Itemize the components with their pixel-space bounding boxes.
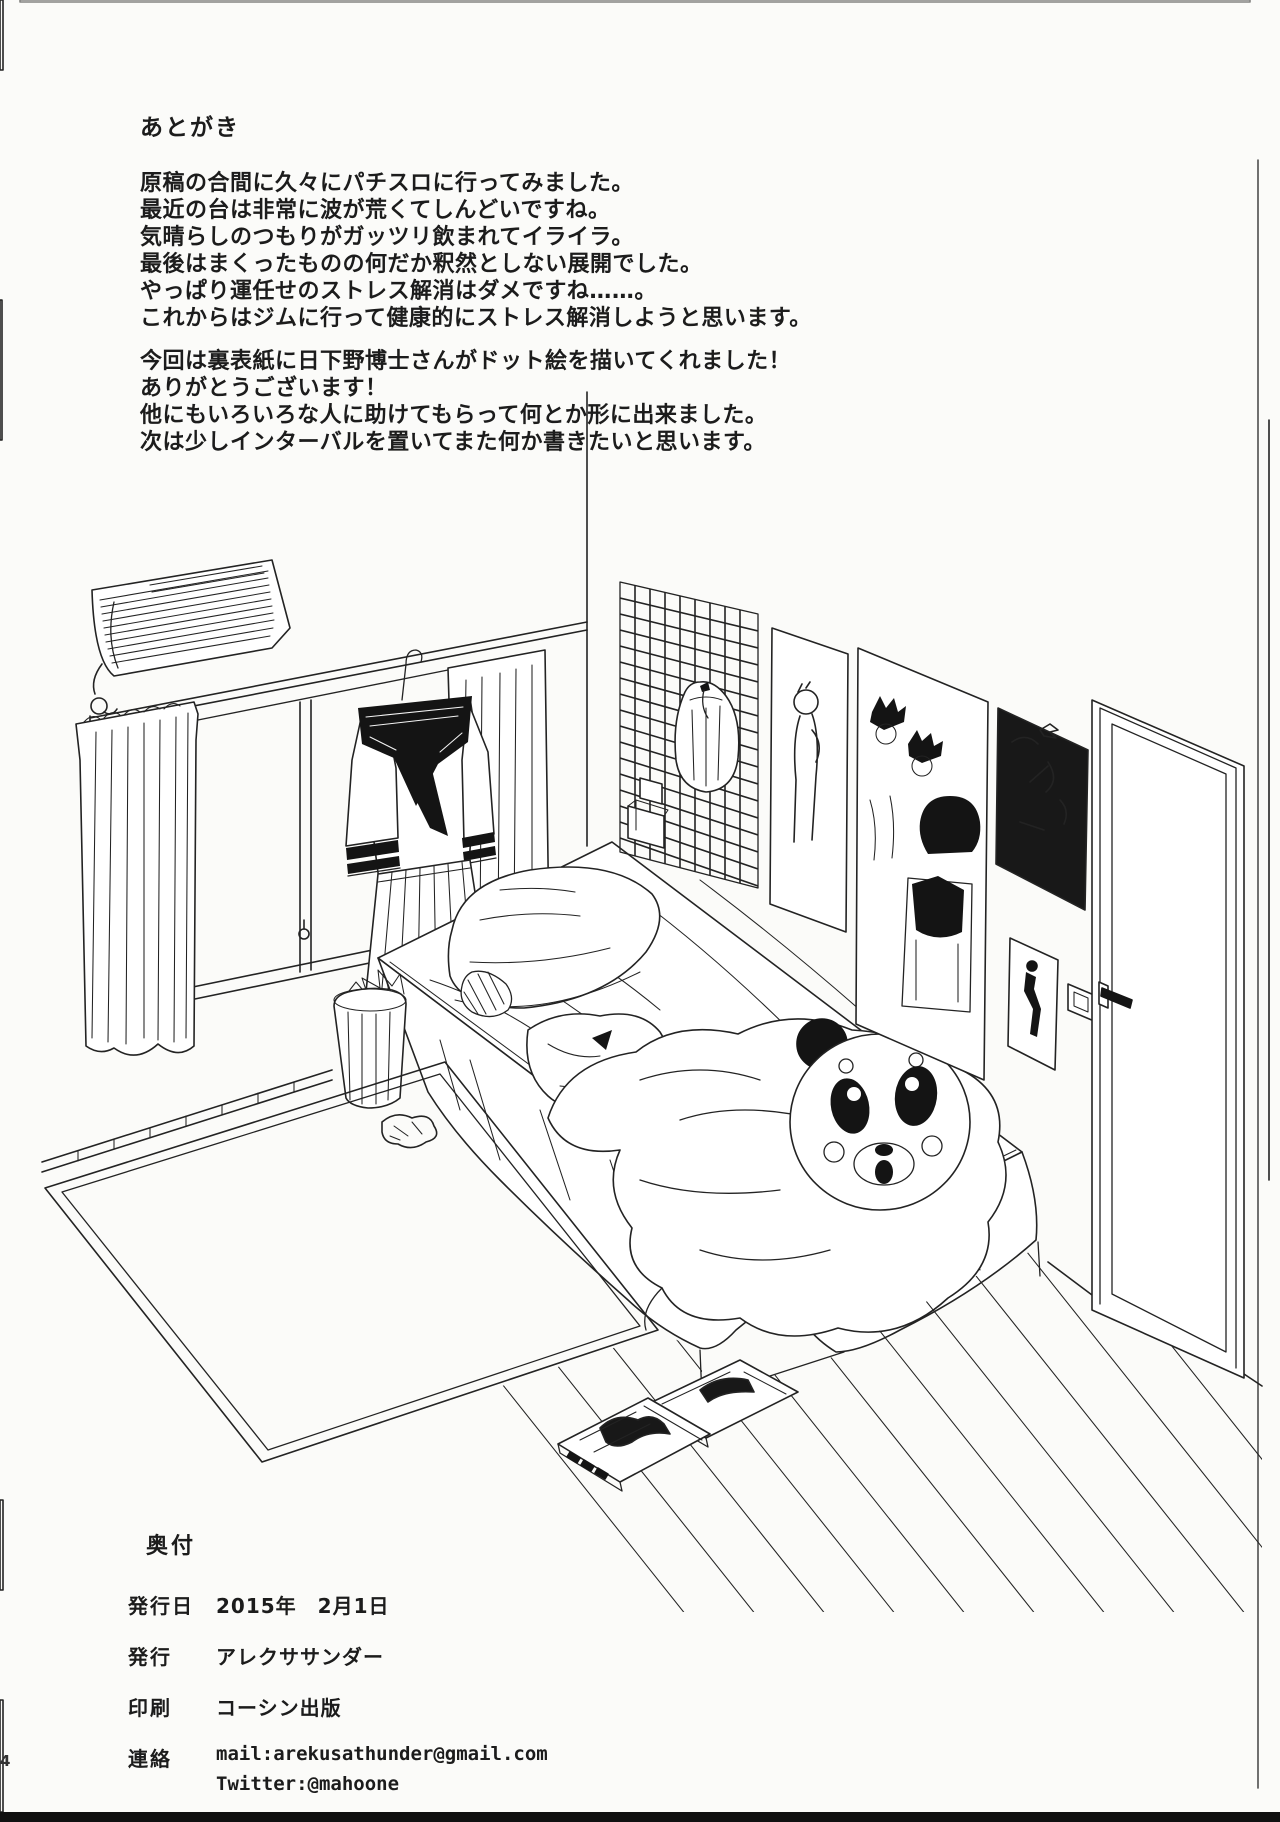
manga-volumes — [558, 1360, 798, 1491]
page-number: 4 — [0, 1752, 10, 1770]
poster-small — [1008, 938, 1058, 1070]
colophon-row: 連絡 mail:arekusathunder@gmail.com Twitter… — [128, 1743, 548, 1795]
drawstring-bag — [675, 682, 739, 792]
contact-email: mail:arekusathunder@gmail.com — [216, 1743, 548, 1765]
colophon-row: 印刷 コーシン出版 — [128, 1692, 548, 1721]
colophon-value: アレクササンダー — [216, 1641, 384, 1670]
bottom-scan-bar — [0, 1812, 1280, 1822]
colophon-label: 発行 — [128, 1641, 216, 1670]
colophon-row: 発行 アレクササンダー — [128, 1641, 548, 1670]
colophon-value: 2015年 2月1日 — [216, 1590, 390, 1619]
contact-twitter: Twitter:@mahoone — [216, 1773, 548, 1795]
wastebasket — [334, 970, 406, 1108]
poster-characters — [856, 648, 988, 1080]
poster-dark — [996, 708, 1088, 910]
air-conditioner — [91, 560, 290, 714]
wall-grid-organizer — [620, 582, 758, 888]
poster-sketch — [770, 628, 848, 932]
floor-tissue — [382, 1115, 437, 1148]
door — [1092, 700, 1244, 1378]
colophon-value: コーシン出版 — [216, 1692, 342, 1721]
colophon-row: 発行日 2015年 2月1日 — [128, 1590, 548, 1619]
grid-boxes — [628, 778, 668, 848]
scanned-doujinshi-page: あとがき 原稿の合間に久々にパチスロに行ってみました。 最近の台は非常に波が荒く… — [0, 0, 1280, 1822]
window-mullion — [300, 700, 311, 972]
colophon-block: 奥付 発行日 2015年 2月1日 発行 アレクササンダー 印刷 コーシン出版 … — [128, 1528, 548, 1817]
left-curtain — [76, 702, 198, 1055]
light-switch — [1068, 984, 1094, 1021]
colophon-label: 連絡 — [128, 1743, 216, 1795]
colophon-label: 印刷 — [128, 1692, 216, 1721]
colophon-label: 発行日 — [128, 1590, 216, 1619]
colophon-title: 奥付 — [146, 1528, 548, 1560]
